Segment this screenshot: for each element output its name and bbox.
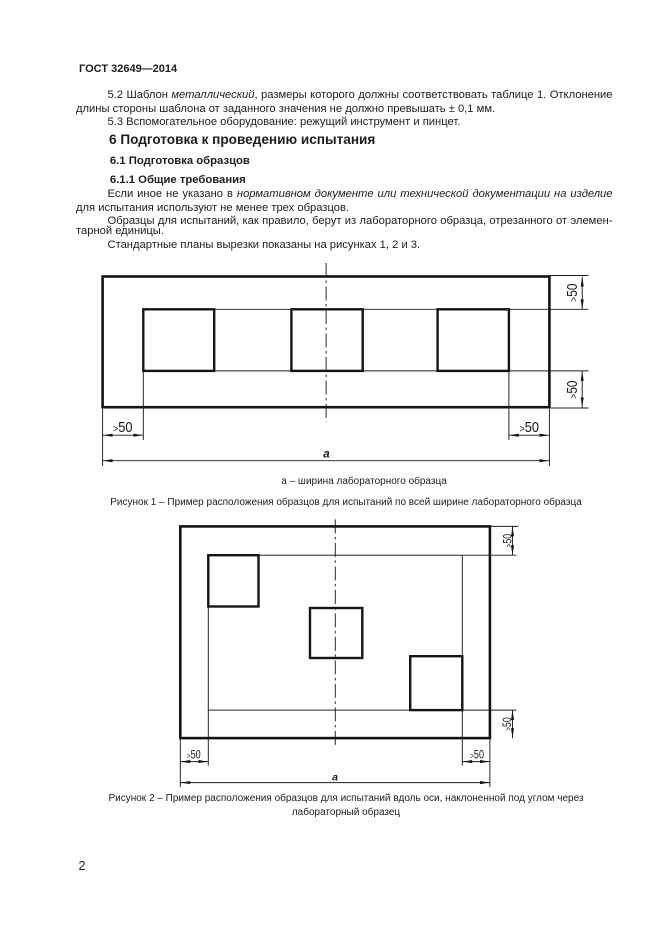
svg-text:>50: >50 (519, 419, 539, 436)
svg-text:>50: >50 (470, 750, 484, 762)
svg-text:>50: >50 (113, 419, 133, 436)
svg-text:>50: >50 (503, 534, 515, 548)
svg-text:>50: >50 (187, 750, 201, 762)
svg-text:>50: >50 (564, 381, 581, 399)
svg-text:а: а (332, 772, 338, 784)
svg-text:а: а (323, 449, 330, 461)
svg-text:>50: >50 (564, 284, 581, 302)
svg-text:>50: >50 (502, 717, 514, 731)
